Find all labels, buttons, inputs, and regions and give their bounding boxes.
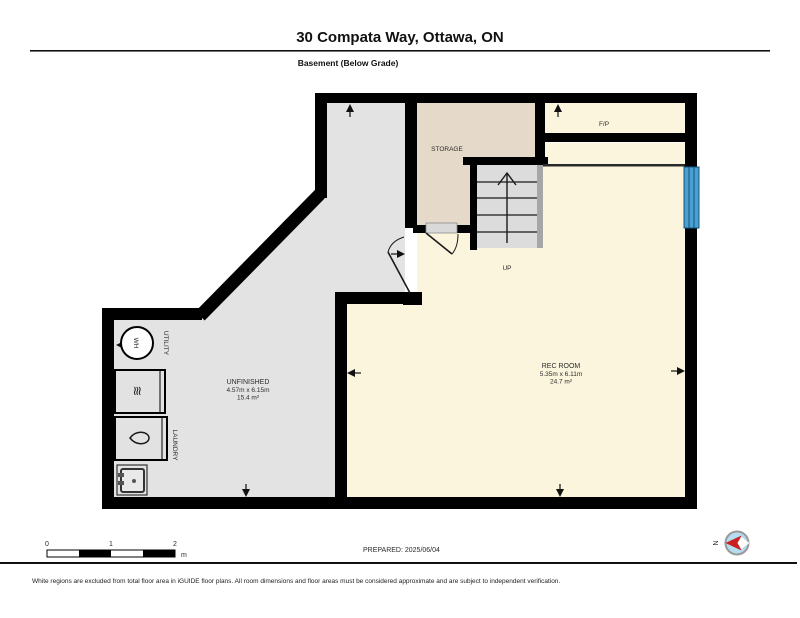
unfinished-dims: 4.57m x 6.15m	[227, 387, 270, 394]
wall-left	[102, 308, 114, 509]
rec-room-area: 24.7 m²	[550, 379, 573, 386]
utility-label: UTILITY	[162, 331, 169, 356]
title-divider	[30, 50, 770, 52]
wall-fp-bottom	[545, 133, 697, 142]
laundry-label: LAUNDRY	[171, 430, 178, 462]
header-beam-line	[543, 164, 685, 167]
scale-bar: 0 1 2 m	[45, 541, 187, 559]
wall-unfinished-rec	[335, 292, 347, 497]
fireplace-label: F/P	[599, 121, 609, 128]
scale-tick-1: 1	[109, 541, 113, 548]
unfinished-area: 15.4 m²	[237, 395, 260, 402]
scale-unit: m	[181, 552, 187, 559]
scale-tick-0: 0	[45, 541, 49, 548]
page-title: 30 Compata Way, Ottawa, ON	[296, 29, 504, 46]
footer-disclaimer: White regions are excluded from total fl…	[32, 578, 560, 585]
scale-bar-seg2	[143, 550, 175, 557]
stairs-railing	[537, 165, 543, 248]
window-glass	[684, 167, 699, 228]
wall-right	[685, 93, 697, 509]
compass-north-label: N	[711, 540, 718, 545]
prepared-date: PREPARED: 2025/06/04	[363, 547, 440, 554]
compass: N	[711, 532, 750, 555]
staircase	[477, 165, 543, 248]
wall-storage-fp	[535, 95, 545, 160]
wall-storage-bottom-left	[413, 225, 426, 233]
floorplan-canvas: 30 Compata Way, Ottawa, ON Basement (Bel…	[0, 0, 800, 618]
storage-door-slab	[426, 223, 457, 233]
wall-corridor-left	[315, 93, 327, 198]
wall-stairs-left	[470, 157, 477, 250]
wall-corridor-right	[405, 93, 417, 228]
floorplan-page: 30 Compata Way, Ottawa, ON Basement (Bel…	[0, 0, 800, 618]
stairs-up-label: UP	[502, 265, 511, 272]
rec-room-floor-nook	[543, 143, 685, 233]
floor-subtitle: Basement (Below Grade)	[298, 58, 399, 68]
scale-tick-2: 2	[173, 541, 177, 548]
wall-upper-left	[102, 308, 202, 320]
window	[684, 167, 699, 228]
fireplace-floor	[545, 103, 685, 133]
furnace-heat-waves-icon: ≋	[130, 386, 145, 397]
water-heater-label: WH	[132, 338, 139, 349]
wall-top	[315, 93, 697, 103]
washer-icon	[115, 417, 167, 460]
rec-room-name: REC ROOM	[542, 363, 581, 370]
footer-divider	[0, 562, 797, 564]
unfinished-name: UNFINISHED	[227, 379, 270, 386]
scale-bar-seg1	[79, 550, 111, 557]
storage-label: STORAGE	[431, 146, 463, 153]
wall-bottom	[102, 497, 697, 509]
rec-room-dims: 5.35m x 6.11m	[540, 371, 583, 378]
laundry-sink-icon	[117, 465, 147, 495]
wall-rec-step	[335, 292, 420, 304]
